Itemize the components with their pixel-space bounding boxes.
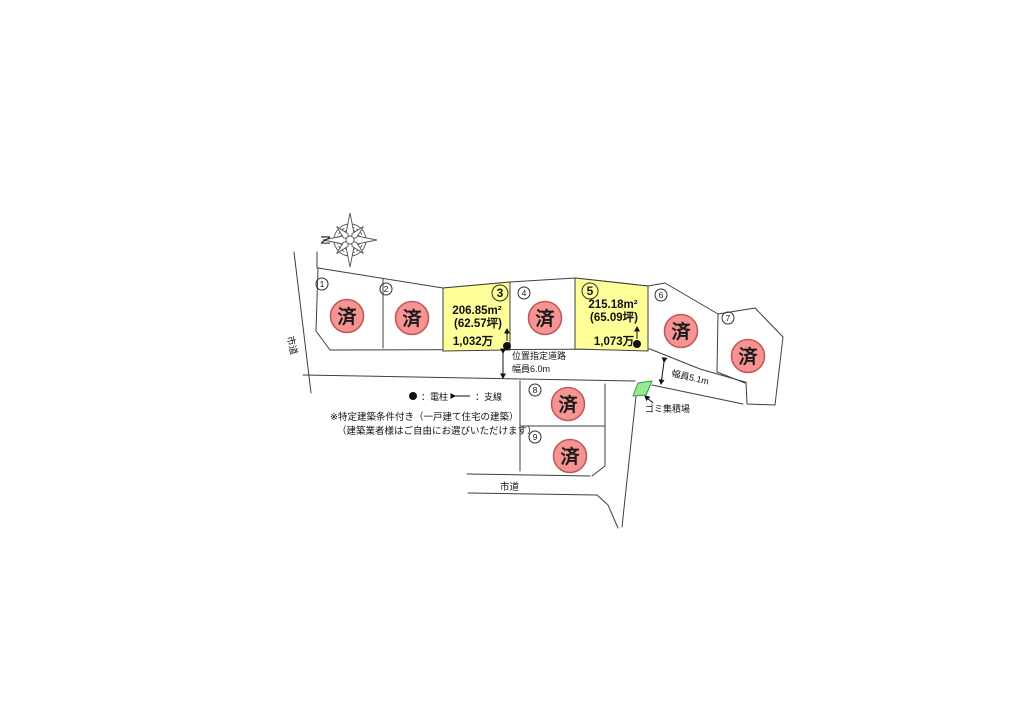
designated-road-south-edge [303,375,635,381]
plot-5-details: 215.18m² (65.09坪) 1,073万 [588,299,638,348]
power-pole-dot-plot5 [633,340,641,348]
side-road-south-edge [652,385,743,404]
svg-text:済: 済 [671,320,691,343]
garbage-station: ゴミ集積場 [633,381,690,414]
compass-rose: N [318,213,377,267]
svg-text:8: 8 [533,385,538,395]
legend-pole-label: ：電柱 [421,391,448,402]
plot-4-number: 4 [518,287,530,299]
power-pole-dot-plot3 [503,342,511,350]
side-road-annotation: 幅員5.1m [661,362,710,387]
sold-stamps: 済 済 済 済 済 済 済 [331,300,765,473]
plot-3-number: 3 [492,285,508,301]
plot-8-sold-stamp: 済 [552,388,585,421]
plot-7-sold-stamp: 済 [732,340,765,373]
north-label: N [318,235,333,244]
bottom-road-north-edge [467,474,590,476]
right-road-west-edge [622,396,636,527]
designated-road-annotation: 位置指定道路 幅員6.0m [503,350,566,378]
plot-6-sold-stamp: 済 [665,315,698,348]
plot7-bottom-edge [717,372,745,383]
svg-text:6: 6 [659,290,664,300]
notes: ※特定建築条件付き（一戸建て住宅の建築） （建築業者様はご自由にお選びいただけま… [330,411,537,437]
plot-2-sold-stamp: 済 [396,302,429,335]
plot-5-area: 215.18m² [588,299,637,311]
legend: ：電柱 ：支線 [409,391,502,402]
plot-5-number: 5 [582,283,598,299]
left-road-label: 市道 [284,335,300,357]
svg-text:済: 済 [738,345,758,368]
plot-6-number: 6 [655,289,667,301]
garbage-label: ゴミ集積場 [645,403,690,414]
legend-guywire-label: ：支線 [475,391,502,402]
plot-9-sold-stamp: 済 [554,440,587,473]
side-road-width-arrow [661,362,664,384]
svg-text:3: 3 [497,286,504,300]
bottom-road-label: 市道 [500,481,520,493]
divider-6-7 [717,314,718,372]
svg-text:済: 済 [402,307,422,330]
garbage-arrow [645,396,653,403]
designated-road-width: 幅員6.0m [512,363,550,374]
svg-text:4: 4 [522,288,527,298]
plot-7-number: 7 [722,312,734,324]
land-plot-map: N 1 2 3 4 5 6 7 [0,0,1024,724]
plot7-corner-strip [746,382,775,405]
svg-text:済: 済 [558,393,578,416]
plot-1-number: 1 [316,278,328,290]
svg-text:済: 済 [337,305,357,328]
notes-line-2: （建築業者様はご自由にお選びいただけます） [337,425,537,437]
designated-road-name: 位置指定道路 [512,350,566,361]
plot-3-price: 1,032万 [453,335,494,348]
plot-1-sold-stamp: 済 [331,300,364,333]
svg-text:済: 済 [560,445,580,468]
plot7-right-edge [775,337,783,405]
left-road-line [294,252,311,393]
plot-4-sold-stamp: 済 [529,302,562,335]
bottom-road-south-edge [468,493,618,528]
plot-3-tsubo: (62.57坪) [454,317,502,330]
garbage-marker [633,381,652,396]
svg-text:7: 7 [726,313,731,323]
plot-5-price: 1,073万 [594,335,635,348]
svg-text:済: 済 [535,307,555,330]
plot-5-tsubo: (65.09坪) [590,311,638,324]
svg-text:2: 2 [384,284,389,294]
plot-3-area: 206.85m² [452,305,501,317]
plot-8-number: 8 [529,384,541,396]
svg-text:5: 5 [587,284,594,298]
notes-line-1: ※特定建築条件付き（一戸建て住宅の建築） [330,411,518,423]
legend-pole-dot [409,392,417,400]
block89-right-edge [592,384,605,476]
plot-2-number: 2 [380,283,392,295]
svg-text:1: 1 [320,279,325,289]
